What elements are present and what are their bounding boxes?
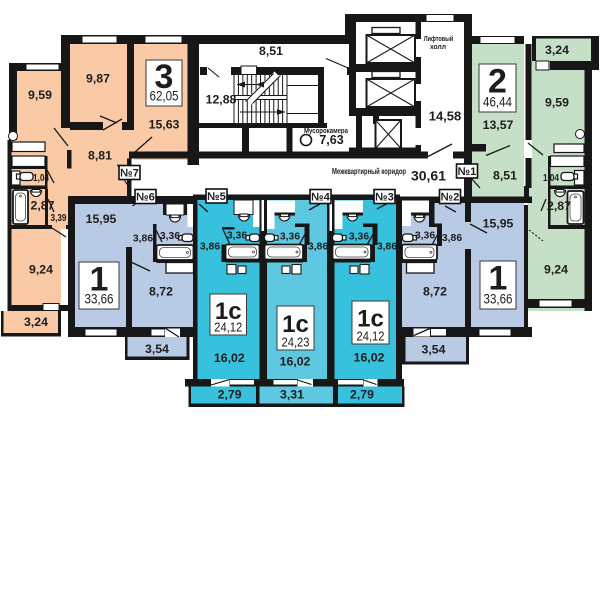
svg-text:8,72: 8,72 [149,284,173,298]
svg-text:33,66: 33,66 [484,292,513,307]
svg-text:15,95: 15,95 [86,212,117,226]
svg-text:9,59: 9,59 [28,88,52,102]
svg-text:3,86: 3,86 [133,234,153,245]
svg-text:2,87: 2,87 [31,198,55,212]
svg-text:8,51: 8,51 [259,44,283,58]
svg-text:16,02: 16,02 [280,354,311,368]
svg-text:3,36: 3,36 [227,231,247,242]
svg-text:3,54: 3,54 [145,342,169,356]
svg-text:8,81: 8,81 [88,148,112,162]
svg-text:24,12: 24,12 [357,330,385,344]
svg-text:3,54: 3,54 [422,342,446,356]
svg-text:8,51: 8,51 [493,168,517,182]
svg-text:№3: №3 [375,191,394,203]
svg-text:3,31: 3,31 [280,388,304,402]
svg-text:9,59: 9,59 [545,95,569,109]
svg-text:15,95: 15,95 [483,216,514,230]
svg-text:1,04: 1,04 [543,173,559,184]
svg-text:62,05: 62,05 [150,89,179,104]
svg-text:1,04: 1,04 [33,173,49,184]
svg-text:3,86: 3,86 [200,242,220,253]
svg-text:3,36: 3,36 [160,231,180,242]
svg-text:3,39: 3,39 [51,213,67,224]
svg-text:24,23: 24,23 [282,336,310,350]
svg-text:№4: №4 [311,191,330,203]
svg-text:№1: №1 [458,166,477,178]
svg-text:9,24: 9,24 [29,262,53,276]
svg-text:16,02: 16,02 [214,351,245,365]
svg-text:3,36: 3,36 [349,232,369,243]
svg-text:1с: 1с [282,311,309,338]
svg-text:3,36: 3,36 [415,231,435,242]
svg-text:1с: 1с [357,306,384,333]
svg-text:№6: №6 [136,191,155,203]
svg-text:3,86: 3,86 [377,242,397,253]
svg-text:№2: №2 [441,191,460,203]
svg-text:3,36: 3,36 [280,232,300,243]
svg-text:46,44: 46,44 [483,95,512,110]
svg-text:2,87: 2,87 [547,199,571,213]
svg-text:14,58: 14,58 [429,108,462,123]
svg-text:3,86: 3,86 [442,233,462,244]
svg-text:16,02: 16,02 [354,350,385,364]
svg-text:2,79: 2,79 [350,388,374,402]
svg-text:30,61: 30,61 [411,168,446,184]
svg-text:9,87: 9,87 [86,71,110,85]
svg-text:холл: холл [430,42,446,51]
svg-text:33,66: 33,66 [85,292,114,307]
svg-text:Мусорокамера: Мусорокамера [304,126,349,135]
svg-text:3,86: 3,86 [308,242,328,253]
svg-text:№5: №5 [207,191,226,203]
svg-text:№7: №7 [120,167,139,179]
svg-text:24,12: 24,12 [214,321,242,335]
svg-text:Межквартирный коридор: Межквартирный коридор [332,166,406,176]
svg-text:3,24: 3,24 [545,43,569,57]
svg-text:9,24: 9,24 [544,262,568,276]
svg-text:2,79: 2,79 [218,388,242,402]
svg-text:15,63: 15,63 [149,118,180,132]
svg-text:8,72: 8,72 [423,284,447,298]
svg-text:3,24: 3,24 [24,315,48,329]
svg-text:12,88: 12,88 [206,92,237,106]
svg-text:13,57: 13,57 [483,118,514,132]
